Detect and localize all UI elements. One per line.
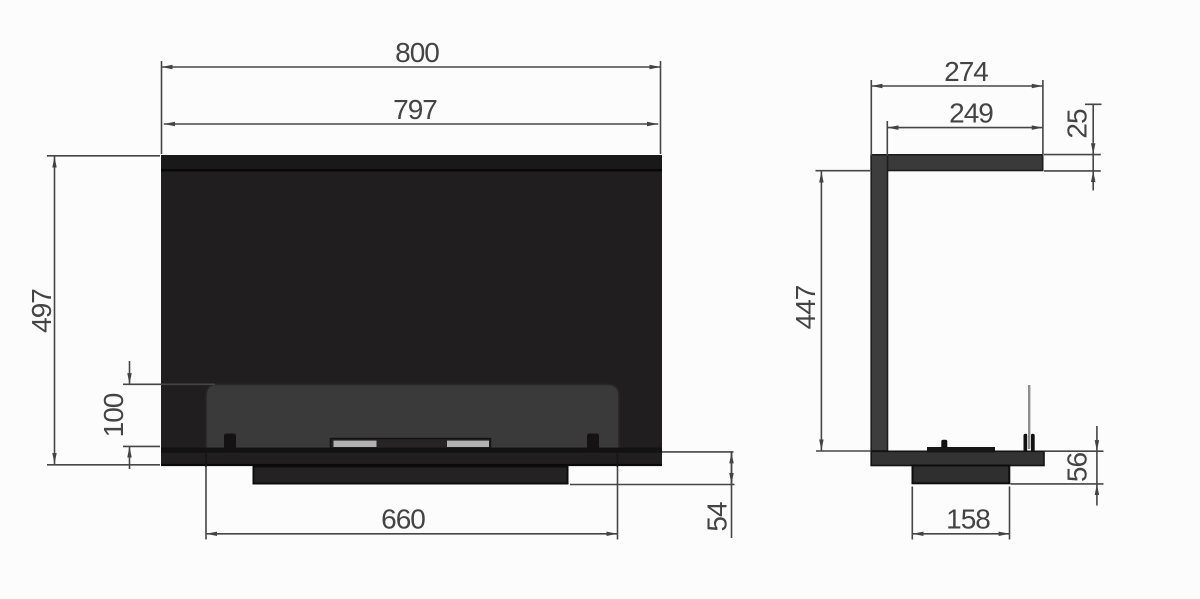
svg-text:158: 158 [946, 504, 990, 535]
svg-text:54: 54 [702, 502, 733, 532]
svg-text:797: 797 [393, 94, 437, 125]
svg-text:25: 25 [1062, 109, 1093, 139]
svg-text:800: 800 [395, 37, 439, 68]
svg-text:100: 100 [98, 393, 129, 437]
svg-text:56: 56 [1062, 453, 1093, 483]
svg-text:249: 249 [949, 98, 993, 129]
svg-text:497: 497 [26, 289, 57, 333]
svg-text:660: 660 [381, 504, 425, 535]
svg-text:447: 447 [790, 285, 821, 329]
svg-text:274: 274 [944, 56, 988, 87]
